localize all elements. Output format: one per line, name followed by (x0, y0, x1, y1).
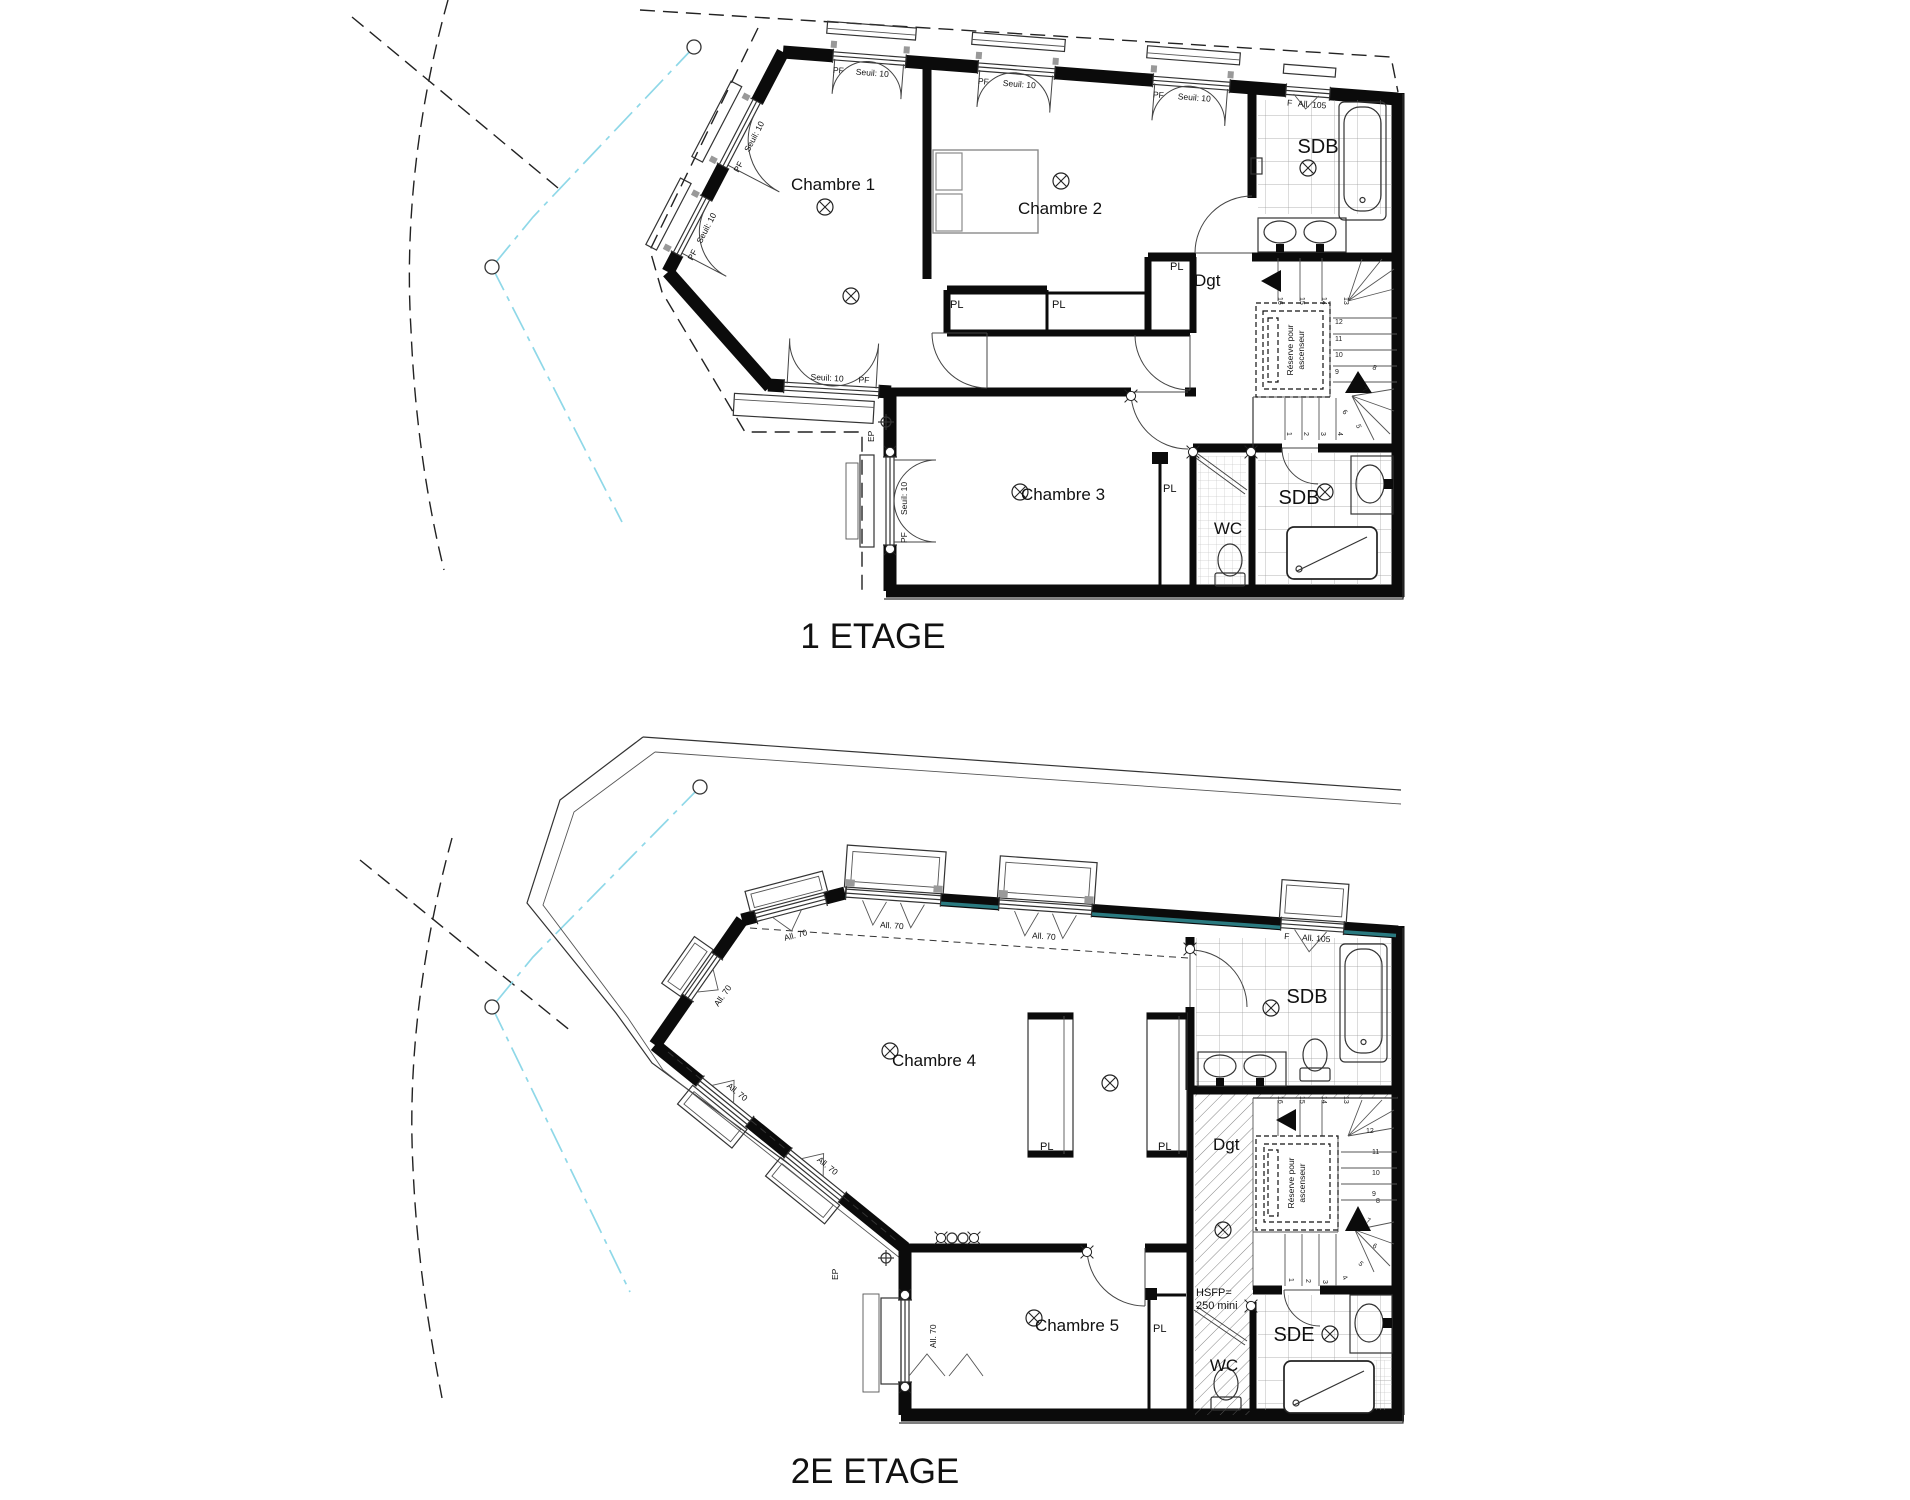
svg-text:F: F (1287, 98, 1293, 108)
room-label-sdb: SDB (1286, 986, 1327, 1008)
elevator-reserve-label: Réserve pour (1285, 324, 1295, 375)
svg-text:1: 1 (1287, 1278, 1294, 1282)
elevator-reserve: Réserve pour ascenseur (1256, 303, 1330, 397)
closet-label: PL (1153, 1323, 1166, 1335)
elevator-reserve-label: ascenseur (1296, 330, 1306, 369)
ep-label: EP (866, 430, 876, 442)
svg-text:10: 10 (1335, 352, 1343, 359)
wardrobe (1147, 1013, 1187, 1157)
pivot-symbol (1245, 446, 1258, 459)
floor1-title: 1 ETAGE (800, 617, 945, 656)
utility-line (492, 47, 694, 267)
ep-label: EP (830, 1268, 840, 1280)
pivot-symbol (1081, 1246, 1094, 1259)
utility-line (492, 267, 622, 522)
pivot-symbol (935, 1232, 948, 1245)
svg-text:14: 14 (1320, 1096, 1327, 1104)
svg-text:PF: PF (899, 532, 909, 543)
closet-label: PL (950, 299, 963, 311)
svg-text:F: F (1284, 931, 1290, 941)
pivot-symbol (1125, 390, 1138, 403)
pivot-symbol (1245, 1300, 1258, 1313)
svg-text:15: 15 (1298, 297, 1305, 305)
svg-text:Seuil: 10: Seuil: 10 (1177, 91, 1211, 104)
svg-text:6: 6 (1340, 409, 1348, 417)
svg-text:Seuil: 10: Seuil: 10 (810, 372, 844, 384)
socket-symbol (947, 1233, 957, 1243)
window-pf: PF Seuil: 10 (1142, 46, 1240, 127)
svg-text:All. 70: All. 70 (783, 927, 809, 943)
svg-text:All. 105: All. 105 (1302, 932, 1331, 944)
closet-label: PL (1040, 1141, 1053, 1153)
room-label-chambre1: Chambre 1 (791, 175, 875, 194)
floor2-staircase: Réserve pour ascenseur 1 2 3 4 5 6 7 8 9… (1253, 1096, 1397, 1286)
svg-text:PF: PF (978, 76, 990, 87)
svg-text:All. 70: All. 70 (928, 1324, 938, 1348)
svg-text:2: 2 (1302, 432, 1309, 436)
room-label-chambre5: Chambre 5 (1035, 1316, 1119, 1335)
room-label-chambre4: Chambre 4 (892, 1051, 976, 1070)
hsfp-note: HSFP= (1196, 1287, 1232, 1299)
svg-text:1: 1 (1285, 432, 1292, 436)
svg-text:10: 10 (1372, 1170, 1380, 1177)
ceiling-light-symbol (817, 199, 833, 215)
window-pf: PF Seuil: 10 (967, 32, 1065, 113)
room-label-chambre3: Chambre 3 (1021, 485, 1105, 504)
floor1-staircase: Réserve pour ascenseur 1 2 3 4 5 6 7 8 9… (1253, 258, 1397, 440)
svg-text:8: 8 (1376, 1198, 1380, 1205)
svg-text:2: 2 (1304, 1279, 1311, 1283)
window: All. 70 (863, 1294, 983, 1392)
ceiling-light-symbol (1053, 173, 1069, 189)
shower-tray (1287, 527, 1377, 579)
room-label-sde: SDE (1273, 1324, 1314, 1346)
bed (933, 150, 1038, 233)
svg-text:16: 16 (1276, 1096, 1283, 1104)
floorplan-canvas: Réserve pour ascenseur 1 2 3 4 5 6 7 8 9… (0, 0, 1910, 1500)
svg-text:11: 11 (1335, 336, 1342, 343)
svg-text:4: 4 (1336, 432, 1343, 436)
svg-text:11: 11 (1372, 1149, 1379, 1156)
room-label-sdb: SDB (1278, 487, 1319, 509)
svg-text:6: 6 (1371, 1243, 1378, 1251)
svg-text:Seuil: 10: Seuil: 10 (1002, 78, 1036, 91)
svg-text:All. 70: All. 70 (712, 983, 734, 1008)
closet-label: PL (1163, 483, 1176, 495)
floor2-plan: Réserve pour ascenseur 1 2 3 4 5 6 7 8 9… (360, 737, 1404, 1491)
svg-text:3: 3 (1321, 1280, 1328, 1284)
room-label-dgt: Dgt (1194, 271, 1221, 290)
ceiling-light-symbol (1102, 1075, 1118, 1091)
room-label-chambre2: Chambre 2 (1018, 199, 1102, 218)
floor2-ceiling-height-lines (668, 928, 1188, 1242)
svg-text:5: 5 (1357, 1260, 1365, 1268)
floor2-rainwater-pipe: EP (830, 1250, 894, 1280)
svg-text:PF: PF (1153, 89, 1165, 100)
room-label-wc: WC (1210, 1356, 1238, 1375)
dormer-window: All. 70 (995, 856, 1097, 945)
utility-line (492, 1007, 630, 1292)
closet-label: PL (1052, 299, 1065, 311)
room-label-dgt: Dgt (1213, 1135, 1240, 1154)
shower-tray (1284, 1361, 1374, 1413)
stair-direction-arrow (1261, 270, 1281, 292)
svg-text:7: 7 (1365, 1217, 1371, 1225)
double-sink (1258, 218, 1346, 252)
hsfp-note: 250 mini (1196, 1300, 1238, 1312)
svg-text:5: 5 (1354, 424, 1362, 430)
room-label-sdb: SDB (1297, 136, 1338, 158)
svg-text:Seuil: 10: Seuil: 10 (899, 482, 909, 515)
survey-point (485, 1000, 499, 1014)
svg-text:14: 14 (1320, 297, 1327, 305)
floor2-title: 2E ETAGE (791, 1452, 960, 1491)
pivot-symbol (968, 1232, 981, 1245)
room-label-wc: WC (1214, 519, 1242, 538)
svg-text:All. 70: All. 70 (1032, 930, 1057, 942)
closet-label: PL (1170, 261, 1183, 273)
svg-text:PF: PF (858, 374, 869, 385)
wardrobe (1028, 1013, 1073, 1157)
svg-text:13: 13 (1342, 297, 1349, 305)
survey-point (687, 40, 701, 54)
svg-text:13: 13 (1342, 1096, 1349, 1104)
closet-label: PL (1158, 1141, 1171, 1153)
svg-text:3: 3 (1319, 432, 1326, 436)
floor2-site-boundary (360, 780, 707, 1398)
svg-text:4: 4 (1340, 1275, 1348, 1282)
window-pf: PF Seuil: 10 (846, 455, 936, 547)
elevator-reserve-label: Réserve pour (1286, 1157, 1296, 1208)
window-pf: PF Seuil: 10 (822, 21, 916, 100)
svg-text:PF: PF (833, 65, 845, 76)
svg-text:9: 9 (1372, 1191, 1376, 1198)
elevator-reserve: Réserve pour ascenseur (1256, 1136, 1338, 1230)
ceiling-light-symbol (843, 288, 859, 304)
socket-symbol (958, 1233, 968, 1243)
floor1-plan: Réserve pour ascenseur 1 2 3 4 5 6 7 8 9… (352, 0, 1404, 656)
svg-text:All. 70: All. 70 (880, 920, 905, 932)
svg-text:12: 12 (1366, 1128, 1374, 1135)
svg-text:8: 8 (1371, 364, 1377, 372)
survey-point (693, 780, 707, 794)
window-pf: PF Seuil: 10 (646, 178, 757, 284)
elevator-reserve-label: ascenseur (1297, 1163, 1307, 1202)
pivot-symbol (1187, 446, 1200, 459)
svg-text:16: 16 (1276, 297, 1283, 305)
svg-text:15: 15 (1298, 1096, 1305, 1104)
stair-direction-arrow (1276, 1109, 1296, 1131)
svg-text:9: 9 (1335, 369, 1339, 376)
pivot-symbol (1184, 943, 1197, 956)
floor1-tiled-floors (1198, 100, 1392, 585)
svg-text:12: 12 (1335, 319, 1343, 326)
svg-text:Seuil: 10: Seuil: 10 (855, 67, 889, 80)
dormer-window: All. 70 (842, 845, 946, 934)
roof-window: All. 70 (745, 871, 838, 949)
survey-point (485, 260, 499, 274)
